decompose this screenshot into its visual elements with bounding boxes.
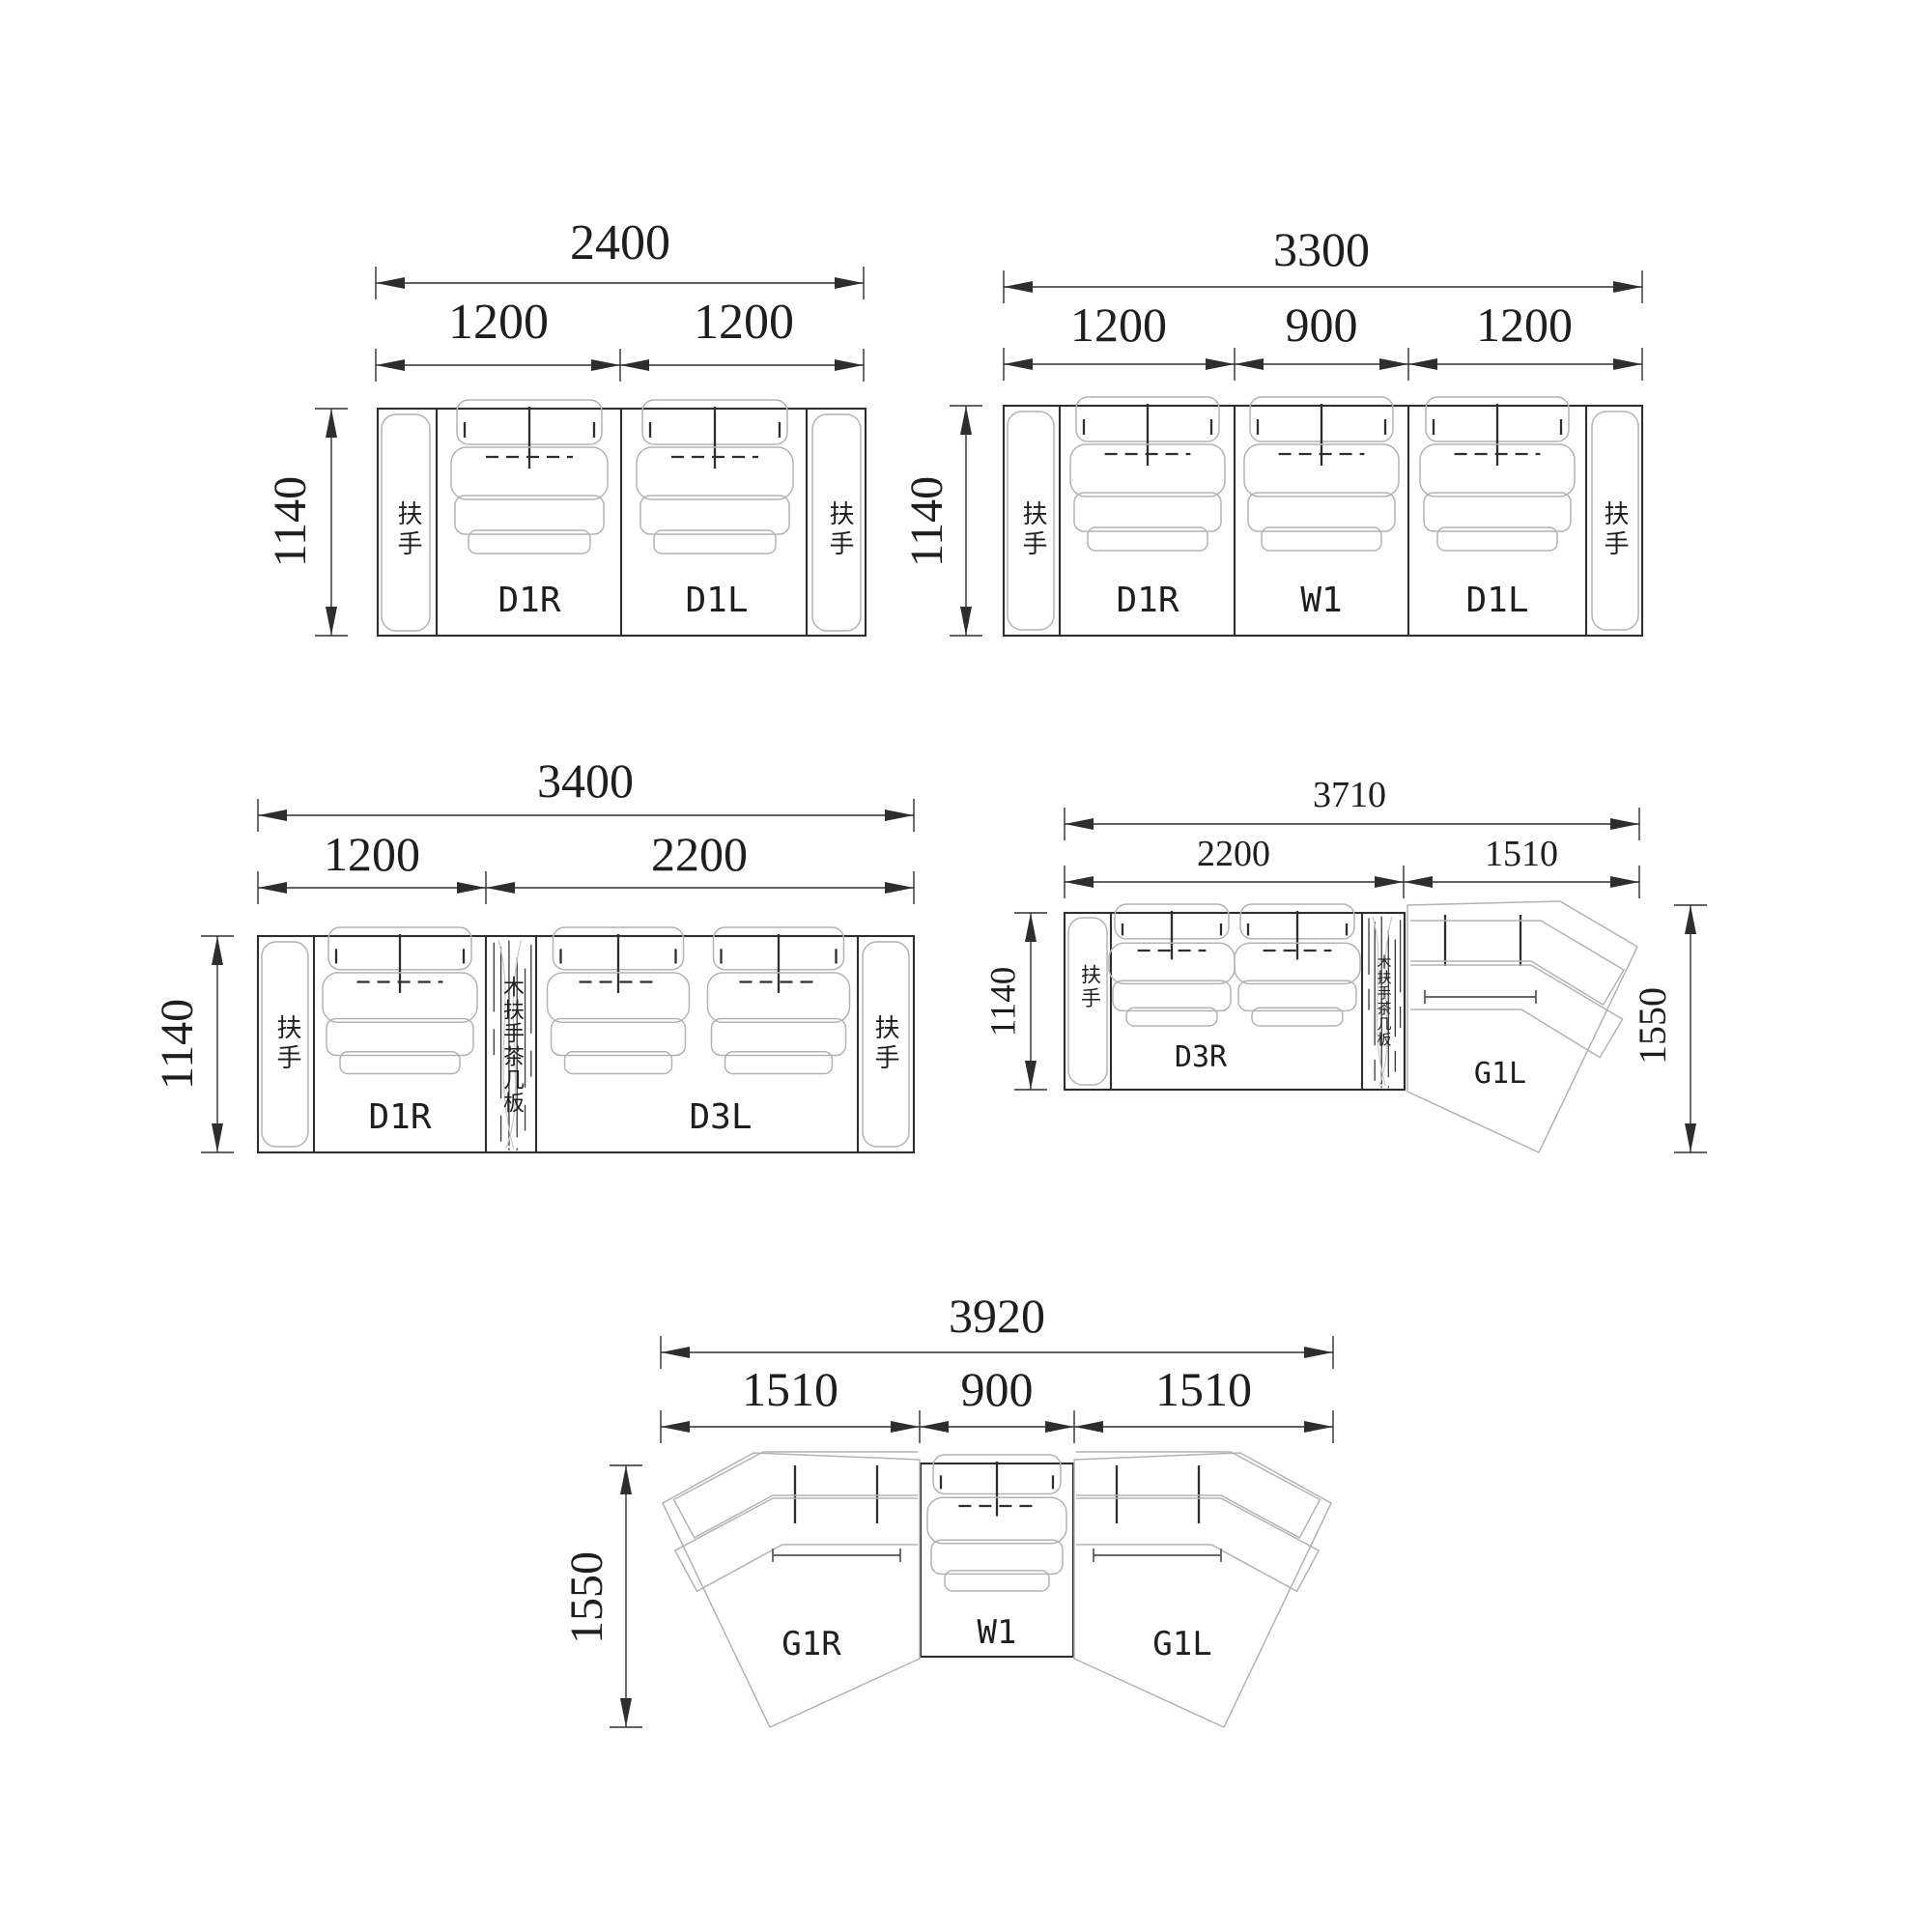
armrest-label: 扶手 [1080, 964, 1100, 1010]
dim-depth: 1140 [268, 476, 314, 567]
dim-segment: 900 [1286, 300, 1358, 349]
module-label: D1R [1116, 583, 1179, 618]
dim-segment: 2200 [1197, 836, 1270, 872]
armrest-label: 扶手 [274, 1014, 299, 1074]
dim-segment: 1200 [448, 298, 549, 348]
dim-depth: 1140 [986, 967, 1022, 1037]
dim-segment: 1200 [694, 298, 794, 348]
seat-icon [1244, 397, 1399, 551]
module-label: D1L [685, 583, 748, 618]
dim-segment: 900 [961, 1365, 1034, 1413]
seat-icon [1109, 904, 1235, 1026]
armrest-label: 扶手 [872, 1014, 897, 1074]
drawing-sheet: 2400 1200 1200 1140 扶手 扶手 D1R D1L 3300 1… [0, 0, 1932, 1932]
seat-icon [927, 1455, 1066, 1591]
dim-segment: 1510 [742, 1365, 838, 1413]
seat-icon [451, 400, 608, 554]
module-label: D1L [1465, 583, 1528, 618]
dim-total: 2400 [570, 218, 670, 269]
seat-icon [1235, 904, 1360, 1026]
seat-icon [323, 927, 477, 1074]
seat-icon [1420, 397, 1575, 551]
dim-total: 3300 [1273, 225, 1370, 273]
module-label: W1 [978, 1616, 1017, 1649]
diagram-config-3710 [1014, 808, 1707, 1152]
seat-icon [548, 927, 690, 1074]
dim-total: 3710 [1313, 777, 1386, 813]
dim-depth: 1140 [904, 476, 951, 567]
dim-height: 1550 [1634, 987, 1672, 1065]
dim-segment: 1200 [1476, 300, 1573, 349]
dim-segment: 1200 [324, 830, 420, 878]
module-g1l-outline [1407, 901, 1637, 1152]
armrest-label: 扶手 [1602, 500, 1627, 560]
dim-segment: 1510 [1155, 1365, 1252, 1413]
wood-panel-label: 木扶手茶几板 [1377, 954, 1391, 1047]
dim-total: 3400 [537, 756, 634, 805]
module-label: D1R [497, 583, 560, 618]
module-g1r-outline [663, 1452, 920, 1727]
wood-panel-label: 木扶手茶几板 [500, 976, 522, 1115]
dim-segment: 1200 [1070, 300, 1167, 349]
module-label: G1L [1152, 1628, 1211, 1661]
dim-height: 1550 [564, 1551, 611, 1644]
module-label: D3R [1175, 1043, 1227, 1072]
dim-total: 3920 [949, 1292, 1045, 1340]
armrest-label: 扶手 [395, 500, 420, 560]
module-label: D3L [689, 1100, 752, 1135]
armrest-label: 扶手 [1020, 500, 1045, 560]
module-label: G1L [1474, 1060, 1526, 1089]
armrest-label: 扶手 [827, 500, 852, 560]
dim-segment: 1510 [1485, 836, 1558, 872]
module-label: G1R [781, 1628, 840, 1661]
module-g1l-outline [1074, 1452, 1331, 1727]
module-label: D1R [368, 1100, 431, 1135]
seat-icon [708, 927, 850, 1074]
seat-icon [1070, 397, 1225, 551]
dim-segment: 2200 [651, 830, 748, 878]
sofa-linework-canvas [0, 0, 1932, 1932]
dim-depth: 1140 [155, 999, 201, 1090]
module-label: W1 [1300, 583, 1342, 618]
seat-icon [637, 400, 793, 554]
diagram-config-3400 [201, 799, 914, 1152]
